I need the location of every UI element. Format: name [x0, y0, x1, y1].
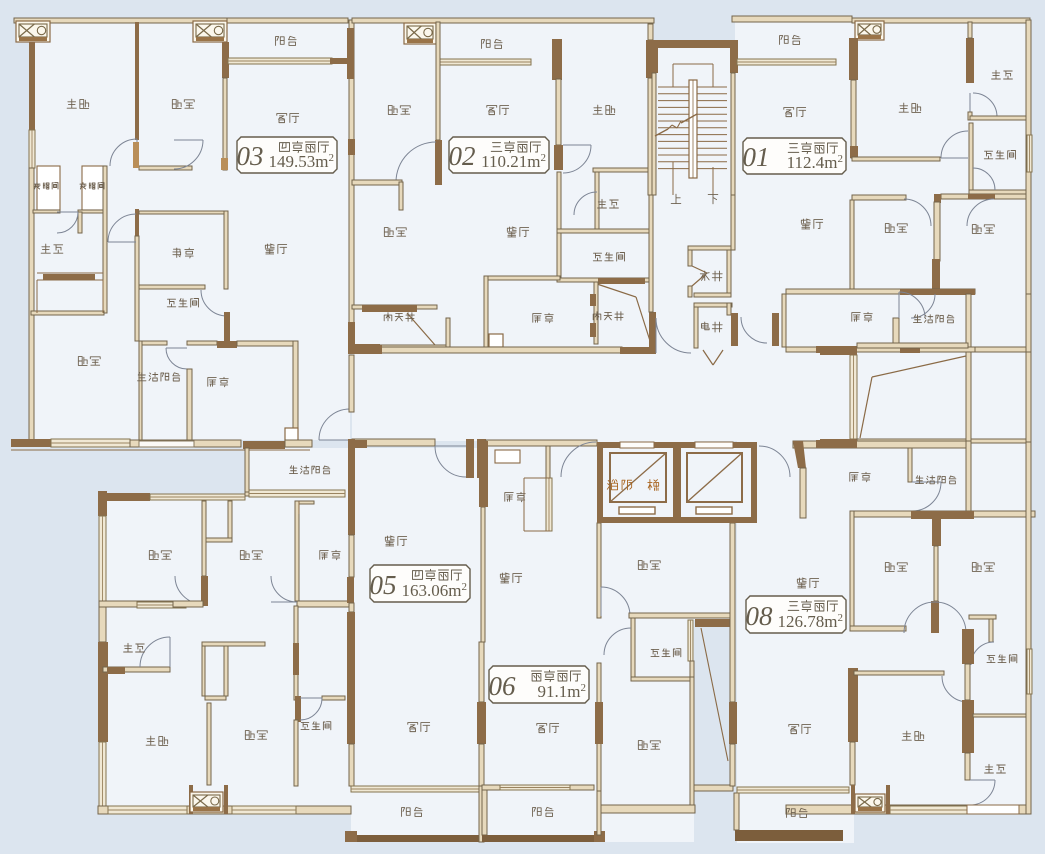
svg-text:126.78m2: 126.78m2	[778, 612, 843, 631]
svg-text:03: 03	[237, 141, 264, 171]
svg-text:163.06m2: 163.06m2	[402, 581, 467, 600]
svg-text:91.1m2: 91.1m2	[538, 682, 586, 701]
svg-text:112.4m2: 112.4m2	[787, 153, 843, 172]
svg-text:05: 05	[370, 570, 397, 600]
svg-text:110.21m2: 110.21m2	[481, 152, 546, 171]
svg-text:08: 08	[746, 601, 774, 631]
svg-text:02: 02	[449, 141, 476, 171]
svg-text:01: 01	[743, 142, 770, 172]
svg-text:06: 06	[489, 671, 517, 701]
svg-text:149.53m2: 149.53m2	[269, 152, 334, 171]
